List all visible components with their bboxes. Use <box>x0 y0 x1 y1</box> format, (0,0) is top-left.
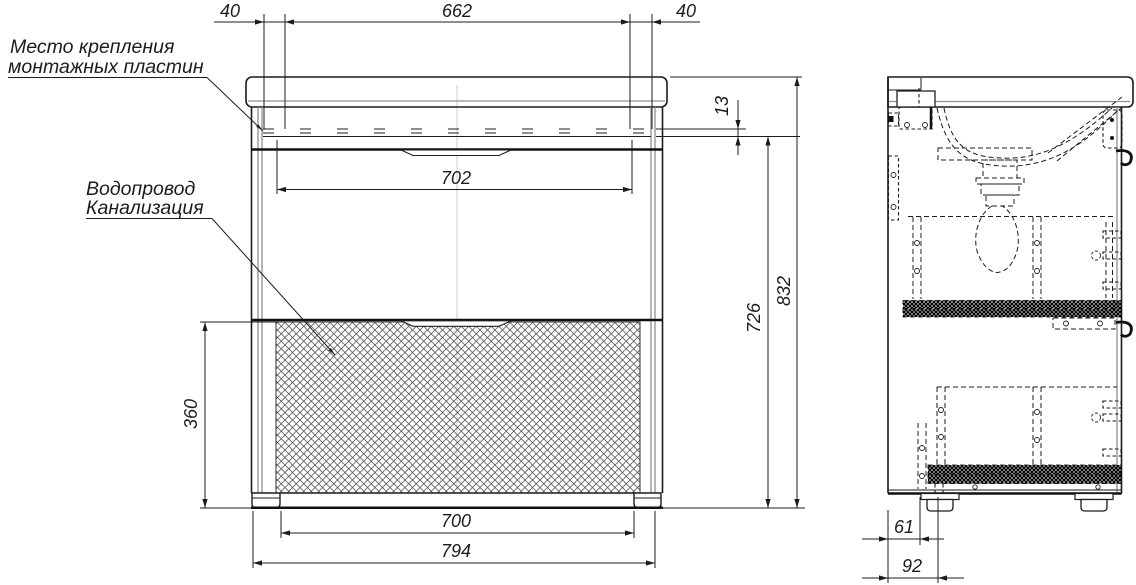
drawing-canvas: 40 662 40 702 360 13 726 832 <box>0 0 1136 585</box>
dim-top-offset-right: 40 <box>676 1 696 21</box>
background <box>0 0 1136 585</box>
back-bracket <box>889 116 894 122</box>
dim-total-width: 794 <box>441 541 471 561</box>
lower-slide-strip-b <box>928 475 1121 484</box>
side-front-foot <box>1081 500 1107 512</box>
mounting-plates-label-line1: Место крепления <box>10 36 175 58</box>
dim-bottom-inner-width: 700 <box>441 511 471 531</box>
dim-foot-front-offset: 92 <box>902 556 922 576</box>
front-left-foot <box>252 493 280 508</box>
dim-total-height: 832 <box>774 276 794 306</box>
dim-top-span: 662 <box>442 1 472 21</box>
upper-drawer-handle-recess <box>401 150 511 156</box>
vanity-technical-drawing: 40 662 40 702 360 13 726 832 <box>0 0 1136 585</box>
screw-dot <box>1110 118 1114 122</box>
upper-slide-strip-b <box>903 309 1121 317</box>
side-front-foot-cap <box>1075 494 1113 500</box>
upper-slide-strip-a <box>903 301 1121 309</box>
dim-mount-height: 726 <box>744 302 764 333</box>
mounting-plates-label-line2: монтажных пластин <box>8 56 204 78</box>
dim-inner-width: 702 <box>441 168 471 188</box>
sink-back-box <box>897 91 935 107</box>
dim-service-zone-height: 360 <box>181 399 201 429</box>
lower-slide-strip-a <box>928 465 1121 474</box>
side-back-foot-cap <box>921 494 959 500</box>
dim-top-offset-left: 40 <box>220 1 240 21</box>
dim-countertop-to-mount: 13 <box>712 96 732 116</box>
dim-foot-back-offset: 61 <box>894 517 914 537</box>
side-back-foot <box>927 500 953 512</box>
lower-drawer-handle-recess <box>401 321 511 327</box>
service-zone-hatch <box>276 322 640 493</box>
front-right-foot <box>634 493 661 508</box>
screw-dot <box>1110 136 1114 140</box>
utilities-label-line2: Канализация <box>86 197 204 219</box>
